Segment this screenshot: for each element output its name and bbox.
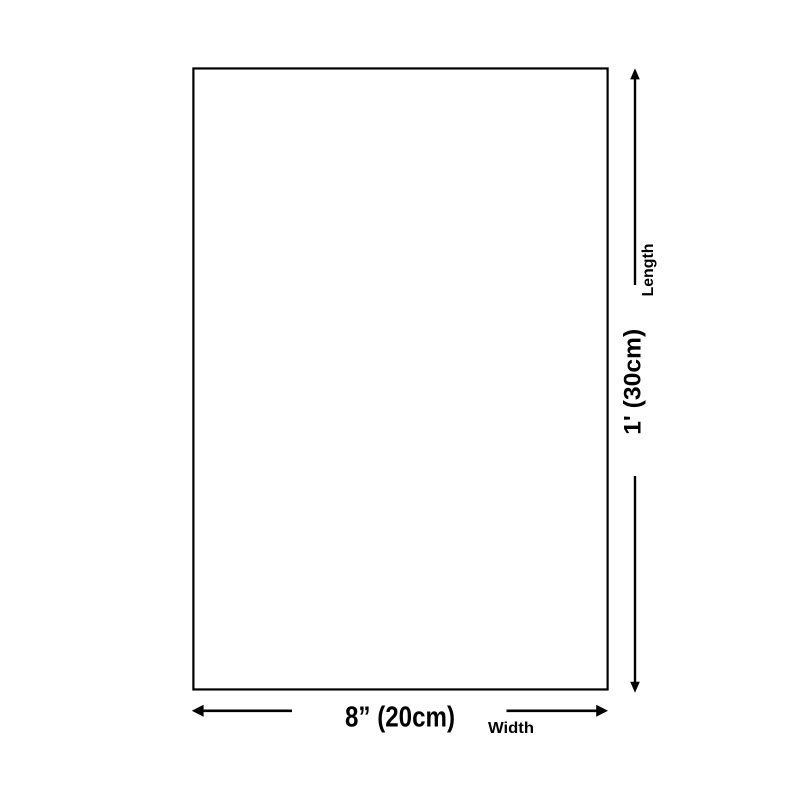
svg-text:Width: Width [488,720,534,737]
svg-text:8” (20cm): 8” (20cm) [345,702,455,734]
svg-text:Length: Length [640,244,657,297]
svg-text:1' (30cm): 1' (30cm) [620,329,647,435]
